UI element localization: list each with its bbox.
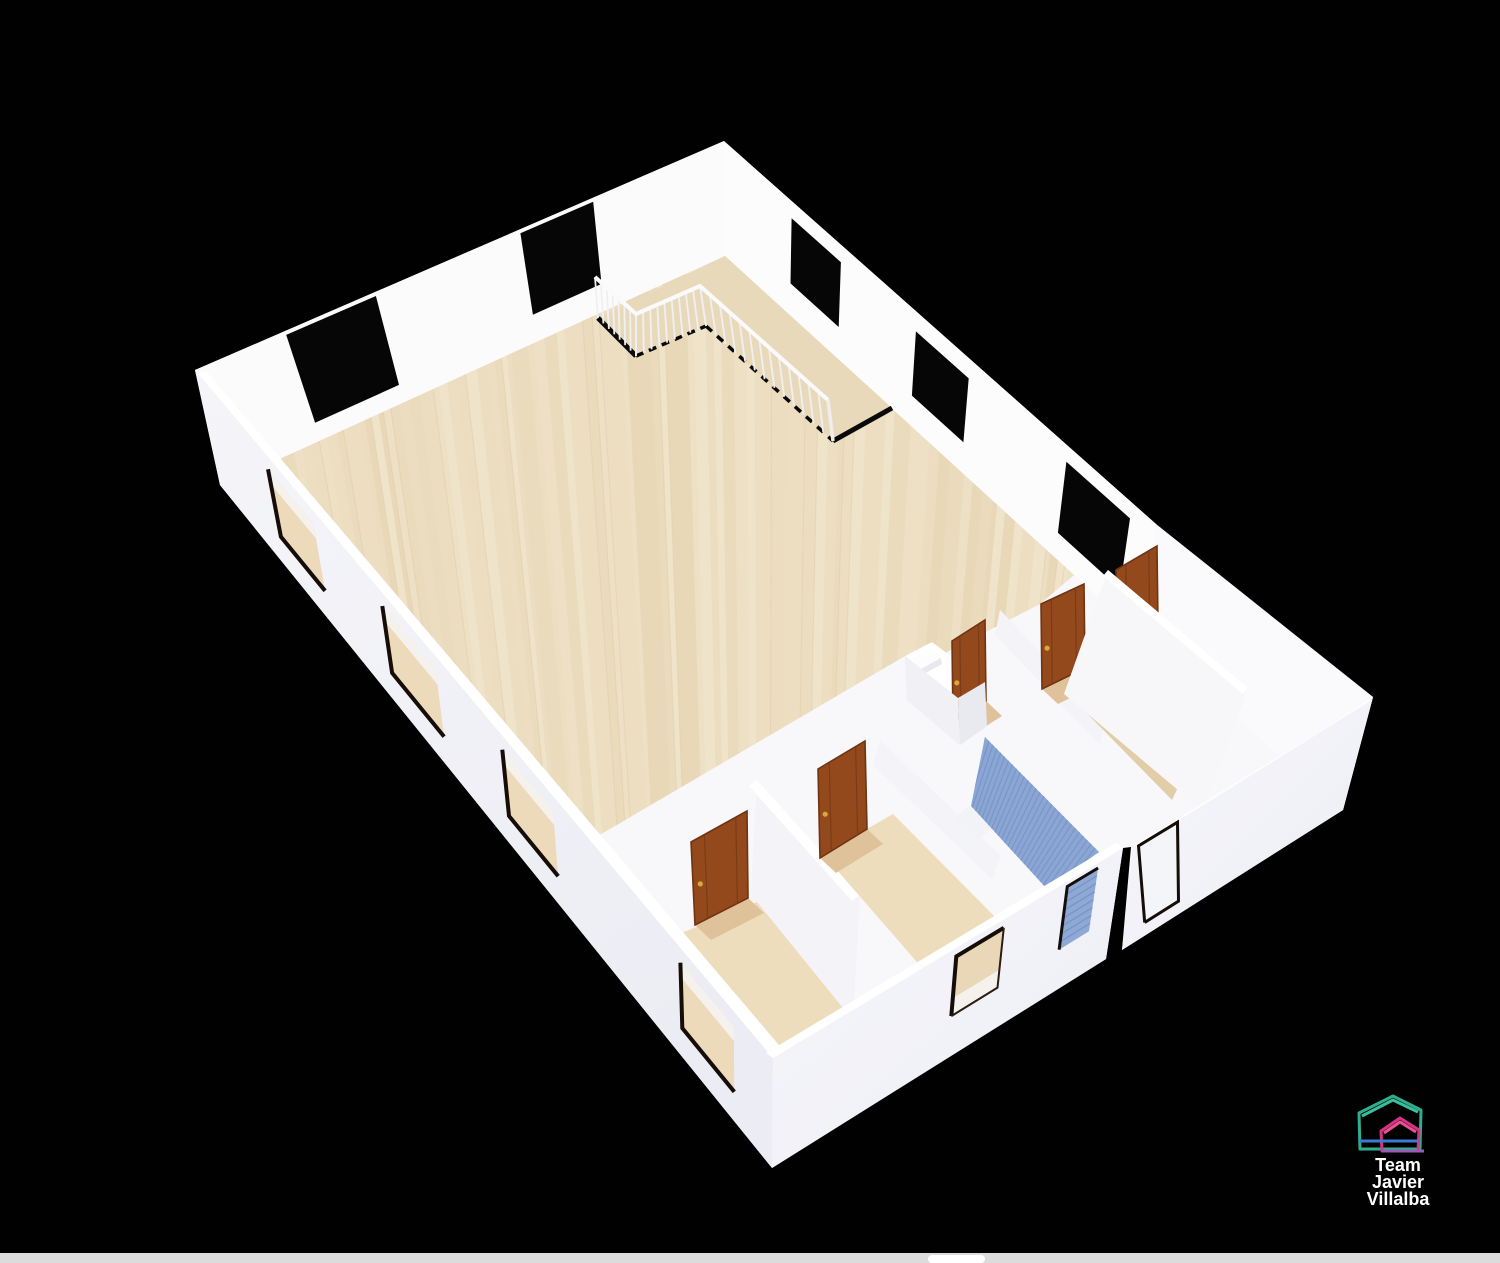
svg-text:Villalba: Villalba xyxy=(1367,1189,1431,1209)
